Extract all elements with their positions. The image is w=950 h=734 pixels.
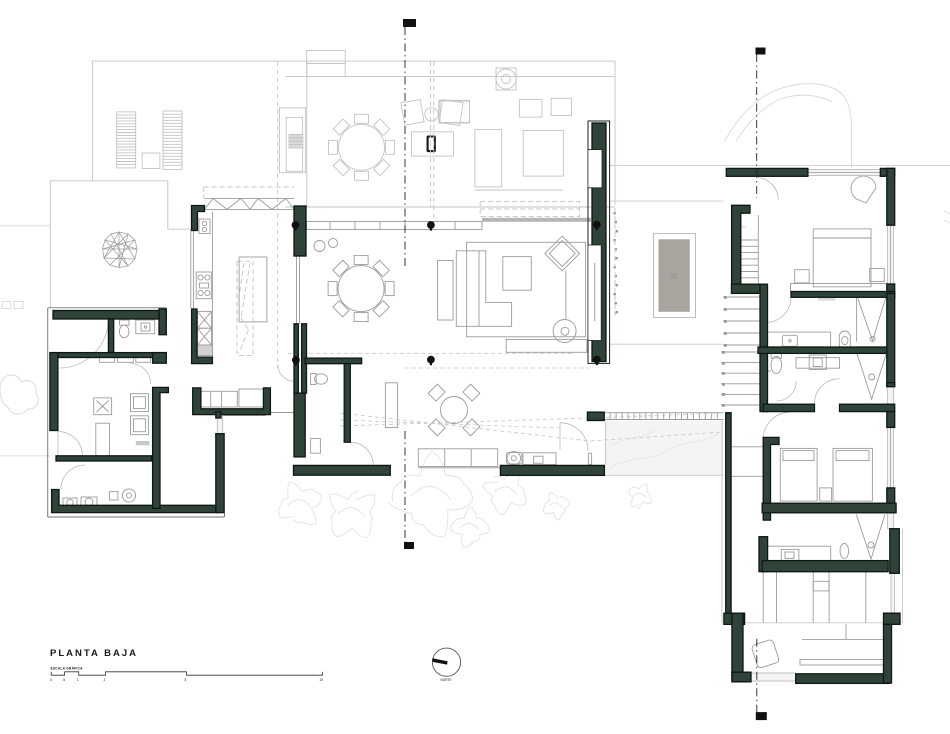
svg-text:NORTE: NORTE — [441, 678, 452, 682]
svg-text:.5: .5 — [62, 678, 65, 682]
svg-text:ESCALA GRÁFICA: ESCALA GRÁFICA — [51, 665, 84, 670]
svg-text:1: 1 — [77, 678, 79, 682]
svg-text:2: 2 — [104, 678, 106, 682]
svg-text:10: 10 — [319, 678, 323, 682]
svg-text:0: 0 — [50, 678, 52, 682]
svg-text:PLANTA BAJA: PLANTA BAJA — [50, 648, 138, 659]
svg-text:5: 5 — [185, 678, 187, 682]
